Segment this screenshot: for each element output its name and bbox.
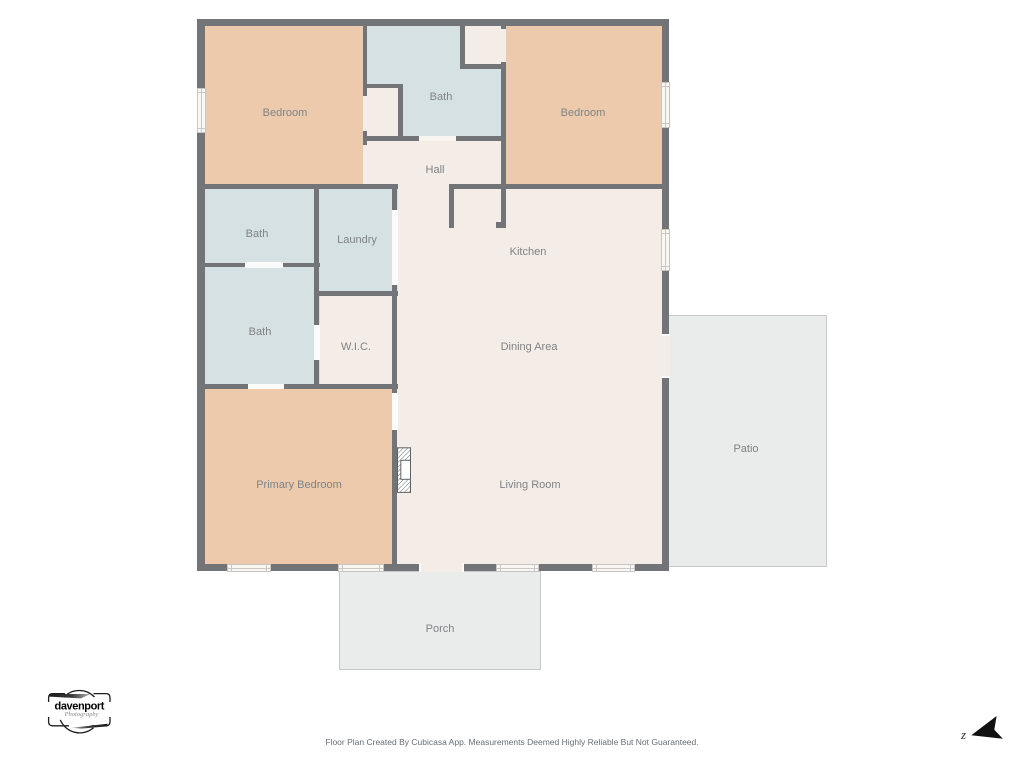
svg-text:Photography: Photography: [64, 711, 99, 718]
